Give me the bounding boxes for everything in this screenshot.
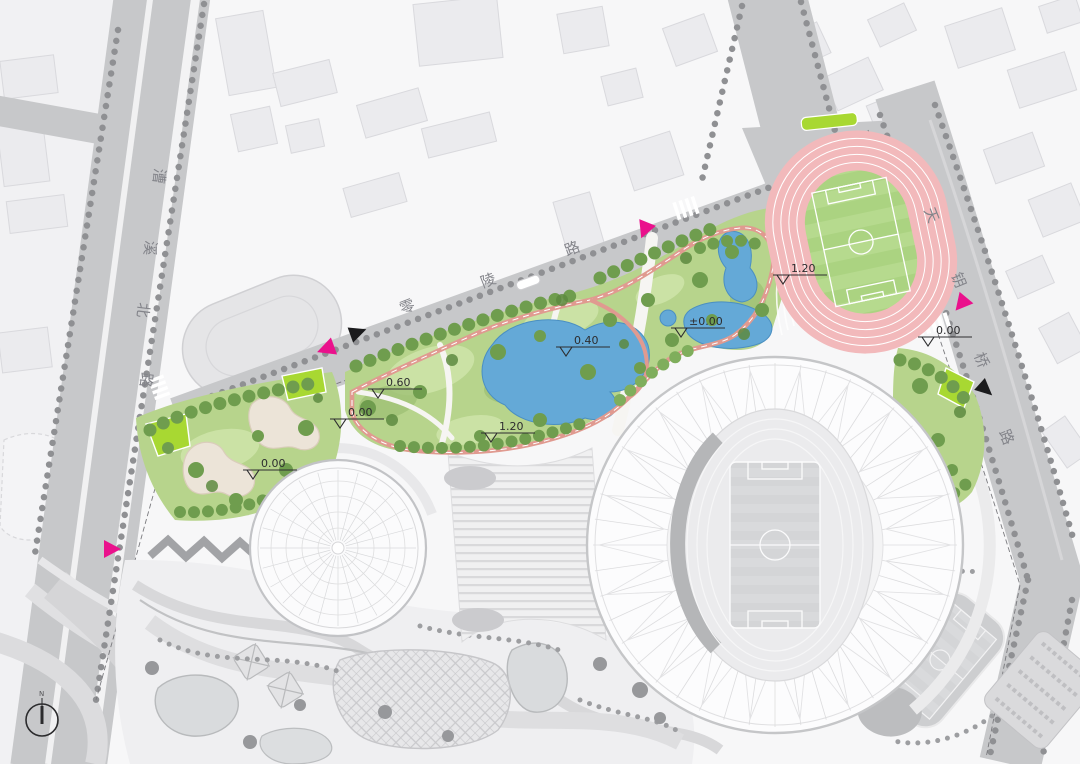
svg-text:路: 路: [136, 372, 156, 389]
elevation-value: 1.20: [499, 420, 524, 433]
site-plan-canvas: 0.00 0.00 0.60 1.20 0.40 ±0.00 1.20 0.0: [0, 0, 1080, 764]
ne-pond-3: [660, 310, 676, 326]
gray-pond: [260, 728, 332, 764]
elevation-value: 0.40: [574, 334, 599, 347]
elevation-value: ±0.00: [689, 315, 723, 328]
svg-text:北: 北: [133, 302, 153, 319]
svg-text:漕: 漕: [149, 168, 169, 185]
elevation-value: 0.00: [261, 457, 286, 470]
svg-text:溪: 溪: [140, 240, 160, 257]
stadium-pitch: [730, 462, 820, 628]
gray-pond: [155, 675, 238, 736]
site-plan-map: 0.00 0.00 0.60 1.20 0.40 ±0.00 1.20 0.0: [0, 0, 1080, 764]
tile-plaza: [333, 650, 510, 749]
elevation-value: 0.60: [386, 376, 411, 389]
main-stadium: [587, 357, 963, 733]
elevation-value: 1.20: [791, 262, 816, 275]
plaza-planter: [452, 608, 504, 632]
compass-north-label: N: [39, 690, 44, 698]
elevation-value: 0.00: [348, 406, 373, 419]
arena-dome: [250, 460, 426, 636]
elevation-value: 0.00: [936, 324, 961, 337]
plaza-planter: [444, 466, 496, 490]
